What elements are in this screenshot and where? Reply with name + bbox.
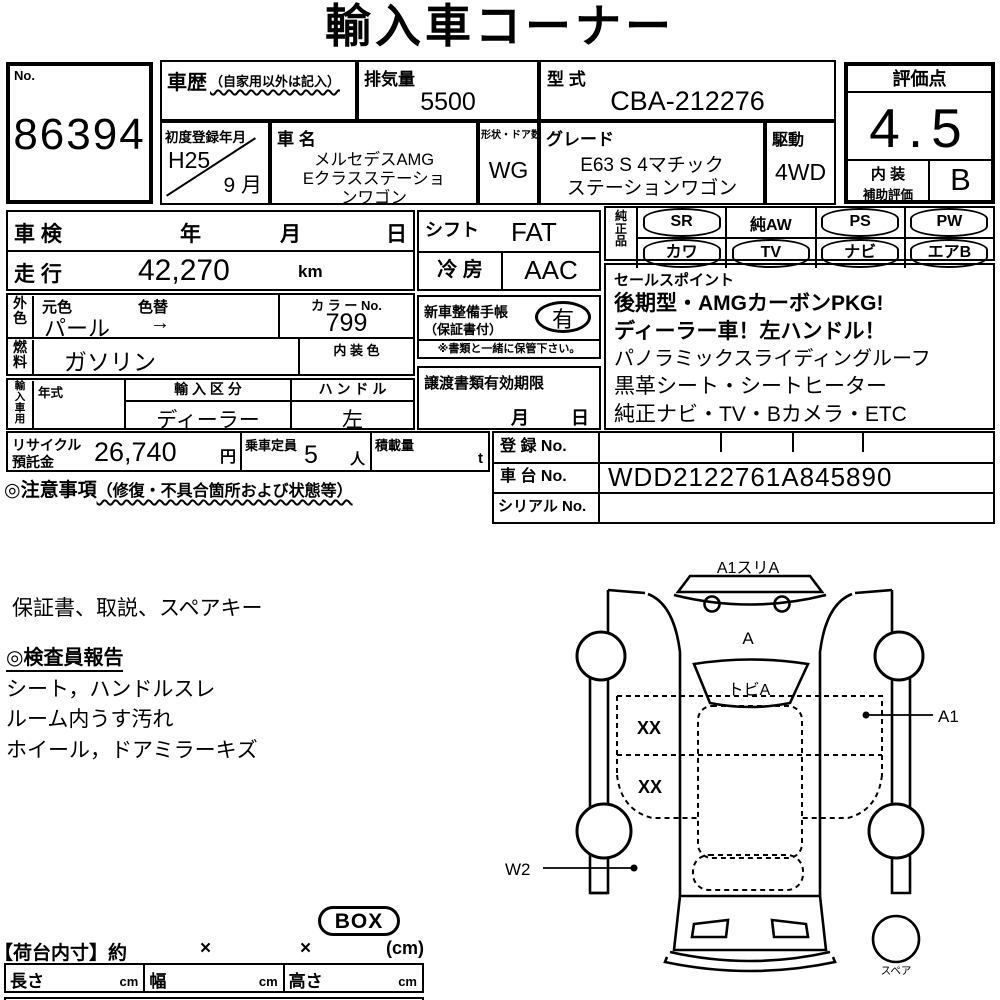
caution-paren: （修復・不具合箇所および状態等） [97,483,353,500]
sales-point-line-4: 黒革シート・シートヒーター [614,373,985,401]
first-registration-label: 初度登録年月 [165,126,246,146]
ac-row: 冷 房 AAC [419,253,599,290]
ac-value: AAC [503,253,599,287]
rear-bumper-lip-1 [670,952,830,961]
displacement-label: 排気量 [364,65,415,90]
history-label: 車歴 [167,66,207,95]
body-left-edge [648,594,680,896]
fuel-value: ガソリン [64,343,156,377]
history-note: （自家用以外は記入） [210,71,340,90]
transfer-box: 譲渡書類有効期限 月 日 [417,366,601,430]
drive-box: 駆動 4WD [765,121,836,205]
diagram-left-label: W2 [505,860,531,879]
int-color-cell: 内 装 色 [298,339,413,375]
reg-no-divider [720,433,722,452]
drive-value: 4WD [767,159,834,186]
color-no-cell: カ ラ ー No. 799 [278,295,413,337]
first-registration-month: 9 月 [223,169,262,199]
record-book-box: 新車整備手帳 （保証書付） 有 ※書類と一緒に保管下さい。 [417,295,601,359]
cargo-dims-label: 【荷台内寸】約 [0,938,127,965]
sales-points-label: セールスポイント [614,269,985,290]
tail-light-right [772,920,808,937]
rear-left-wheel [577,804,631,858]
cargo-times-2: × [300,938,311,960]
load-unit: t [478,450,483,467]
accessories-note: 保証書、取説、スペアキー [12,592,263,622]
record-book-main: 新車整備手帳 （保証書付） 有 [419,297,599,340]
car-name-box: 車 名 メルセデスAMG Eクラスステーショ ンワゴン [270,121,478,205]
recycle-label-2: 預託金 [12,452,54,472]
serial-no-label: シリアル No. [494,494,600,523]
transfer-day: 日 [571,404,589,430]
diagram-hood-label: A [742,629,754,648]
mileage-row: 走 行 42,270 km [8,252,413,290]
inspector-line-1: シート，ハンドルスレ [6,673,215,703]
cargo-width-unit: cm [259,974,278,989]
inspector-title: ◎検査員報告 [6,641,123,672]
diagram-front-label: A1スリA [717,560,780,577]
sales-points-box: セールスポイント 後期型・AMGカーボンPKG! ディーラー車！左ハンドル！ パ… [604,263,995,430]
auction-sheet: 輸入車コーナー No. 86394 車歴 （自家用以外は記入） 排気量 5500… [0,0,1000,1000]
car-condition-diagram: A1スリA A トビA XX XX A1 W2 スペア [490,552,1000,1000]
chassis-no-row: 車 台 No. WDD2122761A845890 [494,464,993,494]
front-bumper [678,576,822,592]
grade-box: グレード E63 S 4マチック ステーションワゴン [539,121,765,205]
score-value: 4.5 [848,96,991,160]
shaken-mileage-box: 車 検 年 月 日 走 行 42,270 km [6,210,415,291]
reg-no-label: 登 録 No. [494,433,600,462]
diagram-floor-label-2: XX [638,777,662,797]
recycle-value: 26,740 [94,437,177,468]
lot-number-box: No. 86394 [6,62,153,204]
import-class-cell: 輸 入 区 分 ディーラー [126,380,292,428]
reg-no-divider [862,433,864,452]
equipment-label: 純 正 品 [606,210,636,261]
shaken-label: 車 検 [14,218,62,248]
grade-label: グレード [546,125,614,150]
equipment-box: 純 正 品 SR 純AW PS PW カワ TV ナビ エアB [604,206,995,261]
cargo-dims-line: 【荷台内寸】約 × × (cm) [0,938,440,962]
import-class-label: 輸 入 区 分 [126,380,290,402]
cargo-length-unit: cm [120,974,139,989]
interior-label-line-2: 補助評価 [848,184,928,203]
interior-score-value: B [930,161,991,199]
equipment-pw: PW [910,208,988,237]
handle-label: ハ ン ド ル [292,380,413,402]
cargo-width-label: 幅 [149,967,166,992]
record-book-label-2: （保証書付） [424,319,502,338]
caution-line: ◎注意事項（修復・不具合箇所および状態等） [4,475,353,502]
shaken-year: 年 [180,218,201,248]
color-fuel-box: 外 色 元色 色替 パール → カ ラ ー No. 799 燃 料 ガソリン 内… [6,293,415,376]
capacity-value: 5 [304,441,318,470]
front-bumper-lip [674,595,826,605]
year-type-cell: 年式 [34,380,126,428]
sales-point-line-2: ディーラー車！左ハンドル！ [614,318,985,346]
sales-point-line-1: 後期型・AMGカーボンPKG! [614,290,985,318]
shaken-month: 月 [280,218,301,248]
diagram-spare-label: スペア [881,965,912,977]
recycle-unit: 円 [220,443,236,467]
diagram-right-label: A1 [938,707,959,726]
shift-ac-box: シフト FAT 冷 房 AAC [417,210,601,291]
score-label: 評価点 [848,66,991,93]
inspector-line-3: ホイール，ドアミラーキズ [6,734,258,764]
sales-point-line-3: パノラミックスライディングルーフ [614,346,985,373]
interior-score-row: 内 装 補助評価 B [848,159,991,200]
equipment-sr: SR [643,208,721,237]
caution-prefix: ◎注意事項 [4,480,97,501]
handle-value: 左 [292,404,413,434]
record-book-note: ※書類と一緒に保管下さい。 [419,339,599,357]
cargo-table: 長さ cm 幅 cm 高さ cm [4,963,424,993]
recycle-cell: リサイクル 預託金 26,740 円 [8,433,242,470]
floor-dashed-corner-right [800,775,882,818]
equipment-aw: 純AW [750,211,792,235]
displacement-box: 排気量 5500 [357,60,539,121]
cargo-height-unit: cm [398,974,417,989]
model-code-value: CBA-212276 [541,86,834,117]
equipment-cell-pw: PW [904,208,993,237]
ext-color-label: 外 色 [8,296,34,338]
front-left-wheel [577,632,625,680]
cargo-times-1: × [200,938,211,960]
shape-value: WG [480,157,537,184]
fuel-row: 燃 料 ガソリン 内 装 色 [8,339,413,375]
score-box: 評価点 4.5 内 装 補助評価 B [844,62,995,204]
tail-light-left [692,920,728,937]
chassis-no-value: WDD2122761A845890 [608,464,993,491]
color-no-value: 799 [280,309,413,338]
diagram-floor-label-1: XX [637,718,661,738]
car-name-line-3: ンワゴン [272,184,476,208]
sales-point-line-5: 純正ナビ・TV・Bカメラ・ETC [614,401,985,429]
color-row: 外 色 元色 色替 パール → カ ラ ー No. 799 [8,295,413,339]
diagram-windshield-label: トビA [728,681,771,699]
transfer-month: 月 [511,404,529,430]
history-box: 車歴 （自家用以外は記入） [160,60,357,121]
right-pointer-dot [863,712,870,719]
equipment-cell-ps: PS [815,208,904,237]
ac-label: 冷 房 [419,253,503,290]
equipment-ps: PS [821,208,899,237]
page-title: 輸入車コーナー [0,0,1000,53]
import-class-value: ディーラー [126,404,290,434]
shaken-day: 日 [386,218,407,248]
cabin-dashed-outline [698,706,802,858]
handle-cell: ハ ン ド ル 左 [292,380,413,428]
load-label: 積載量 [375,435,414,454]
record-book-value: 有 [535,301,591,333]
shape-label: 形状・ドア数 [481,126,541,141]
displacement-value: 5500 [359,88,537,117]
capacity-label: 乗車定員 [245,435,297,454]
reg-no-row: 登 録 No. [494,433,993,464]
equipment-cell-sr: SR [636,208,725,237]
box-stamp: BOX [318,906,400,936]
body-right-edge [820,594,852,896]
inspector-line-2: ルーム内うす汚れ [6,703,173,733]
load-cell: 積載量 t [372,433,488,470]
cargo-cell-width: 幅 cm [145,965,284,991]
recycle-row: リサイクル 預託金 26,740 円 乗車定員 5 人 積載量 t [6,431,490,472]
interior-score-label: 内 装 補助評価 [848,161,930,200]
year-type-label: 年式 [38,382,63,401]
rear-window-dashed [693,855,803,890]
first-registration-box: 初度登録年月 H25 9 月 [160,121,270,205]
mileage-value: 42,270 [138,254,230,288]
drive-label: 駆動 [772,126,804,150]
model-code-box: 型 式 CBA-212276 [539,60,836,121]
shift-row: シフト FAT [419,212,599,253]
reg-no-value-cell [600,433,993,462]
cargo-cell-length: 長さ cm [6,965,145,991]
cargo-unit: (cm) [386,938,424,959]
int-color-label: 内 装 色 [300,340,413,359]
shape-box: 形状・ドア数 WG [478,121,539,205]
chassis-no-label: 車 台 No. [494,464,600,492]
mileage-unit: km [298,262,323,282]
left-pointer-dot [631,865,638,872]
shift-value: FAT [511,217,557,248]
grade-line-2: ステーションワゴン [541,173,763,200]
shaken-row: 車 検 年 月 日 [8,212,413,252]
fuel-label: 燃 料 [8,340,34,376]
rear-right-wheel [869,804,923,858]
record-book-value-text: 有 [552,307,574,332]
registration-table: 登 録 No. 車 台 No. WDD2122761A845890 シリアル N… [492,431,995,524]
cargo-height-label: 高さ [289,967,323,992]
capacity-cell: 乗車定員 5 人 [242,433,372,470]
mileage-label: 走 行 [14,258,62,288]
color-change-arrow: → [150,312,170,335]
import-box: 輸 入 車 用 年式 輸 入 区 分 ディーラー ハ ン ド ル 左 [6,378,415,430]
lot-number-value: 86394 [10,110,149,160]
interior-label-line-1: 内 装 [848,163,928,184]
shift-label: シフト [425,216,479,242]
rear-bumper-lip-2 [665,957,835,971]
front-right-wheel [875,632,923,680]
equipment-cell-aw: 純AW [725,208,814,237]
right-panel-top [855,590,892,593]
left-panel-top [608,590,645,593]
spare-tire-circle [873,916,919,962]
capacity-unit: 人 [350,448,365,469]
cargo-cell-height: 高さ cm [285,965,422,991]
transfer-label: 譲渡書類有効期限 [424,372,544,393]
import-use-label: 輸 入 車 用 [8,381,34,429]
lot-number-label: No. [14,68,35,83]
reg-no-divider [792,433,794,452]
serial-no-row: シリアル No. [494,494,993,523]
cargo-length-label: 長さ [10,967,44,992]
equipment-grid: SR 純AW PS PW カワ TV ナビ エアB [636,208,993,259]
